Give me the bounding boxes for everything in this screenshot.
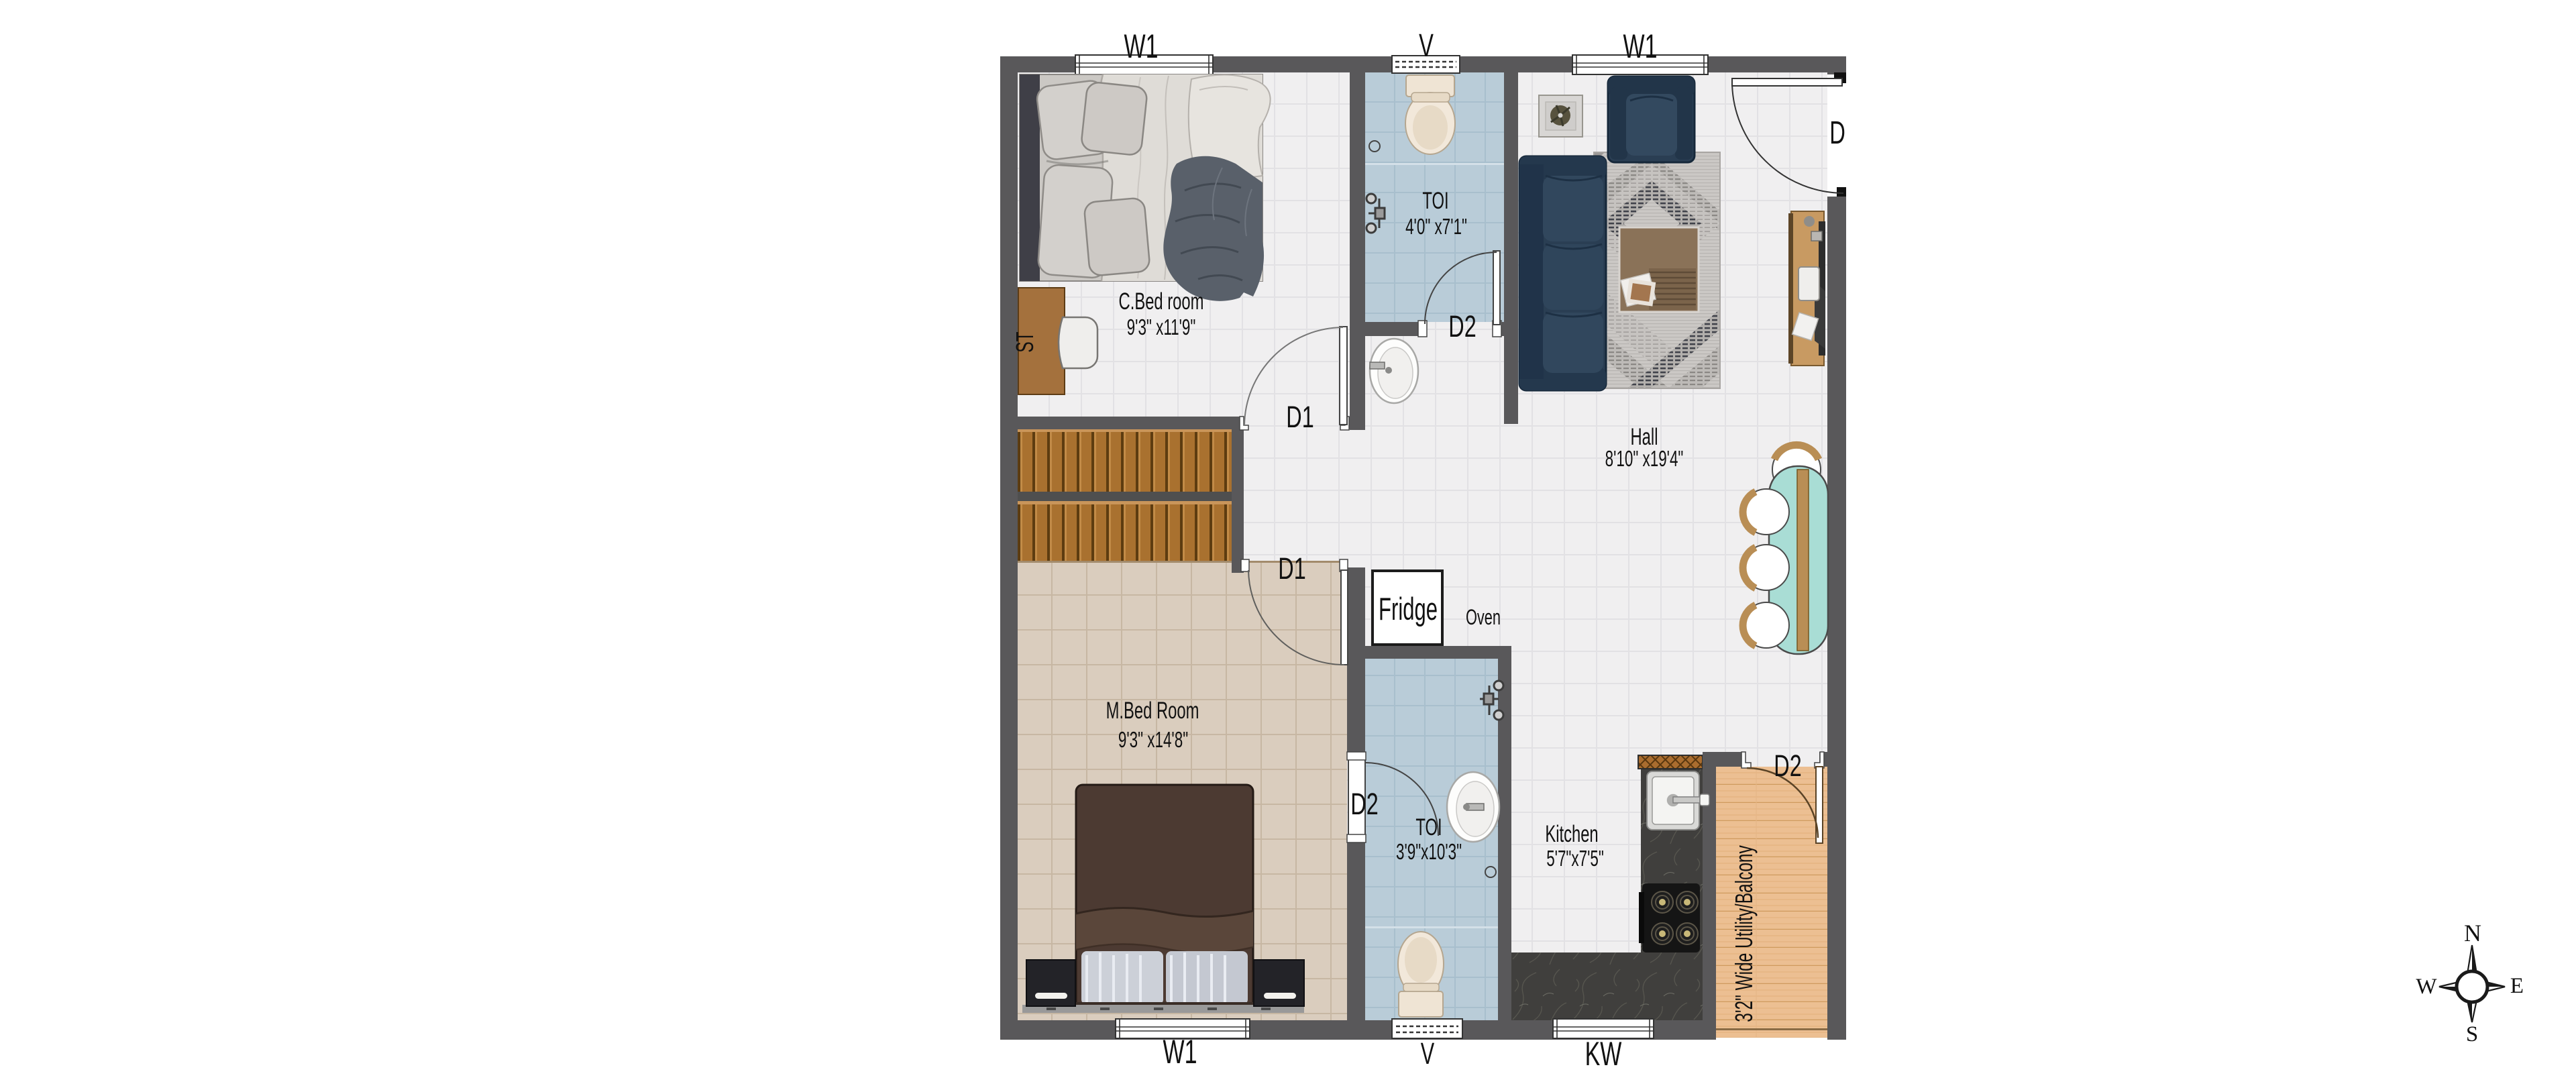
svg-text:TOI: TOI (1415, 815, 1442, 841)
svg-text:ST: ST (1011, 331, 1038, 352)
svg-text:TOI: TOI (1422, 188, 1448, 215)
svg-text:N: N (2464, 920, 2481, 946)
svg-text:W1: W1 (1163, 1034, 1197, 1071)
svg-text:KW: KW (1585, 1036, 1622, 1073)
svg-text:5'7"x7'5": 5'7"x7'5" (1546, 846, 1604, 871)
svg-text:9'3" x14'8": 9'3" x14'8" (1118, 727, 1188, 752)
svg-text:C.Bed room: C.Bed room (1119, 289, 1204, 315)
svg-text:W1: W1 (1124, 28, 1159, 66)
svg-text:D2: D2 (1774, 750, 1801, 783)
svg-text:V: V (1421, 1037, 1435, 1071)
svg-text:S: S (2466, 1022, 2478, 1046)
svg-text:D2: D2 (1448, 311, 1476, 343)
svg-text:4'0" x7'1": 4'0" x7'1" (1405, 214, 1467, 239)
svg-text:D2: D2 (1350, 788, 1378, 821)
svg-text:E: E (2510, 974, 2524, 998)
svg-text:D1: D1 (1278, 553, 1305, 586)
svg-text:W1: W1 (1623, 28, 1658, 66)
svg-text:Fridge: Fridge (1379, 592, 1438, 627)
svg-text:Oven: Oven (1466, 605, 1501, 629)
svg-text:W: W (2416, 975, 2437, 999)
svg-text:8'10" x19'4": 8'10" x19'4" (1605, 446, 1684, 471)
svg-text:V: V (1419, 28, 1434, 64)
svg-text:3'2" Wide Utility/Balcony: 3'2" Wide Utility/Balcony (1730, 845, 1758, 1022)
svg-text:Kitchen: Kitchen (1545, 822, 1598, 848)
svg-text:3'9"x10'3": 3'9"x10'3" (1396, 839, 1462, 864)
svg-text:M.Bed Room: M.Bed Room (1106, 698, 1199, 724)
svg-text:9'3" x11'9": 9'3" x11'9" (1127, 315, 1196, 339)
svg-text:D1: D1 (1286, 401, 1313, 434)
svg-text:D: D (1829, 115, 1845, 151)
